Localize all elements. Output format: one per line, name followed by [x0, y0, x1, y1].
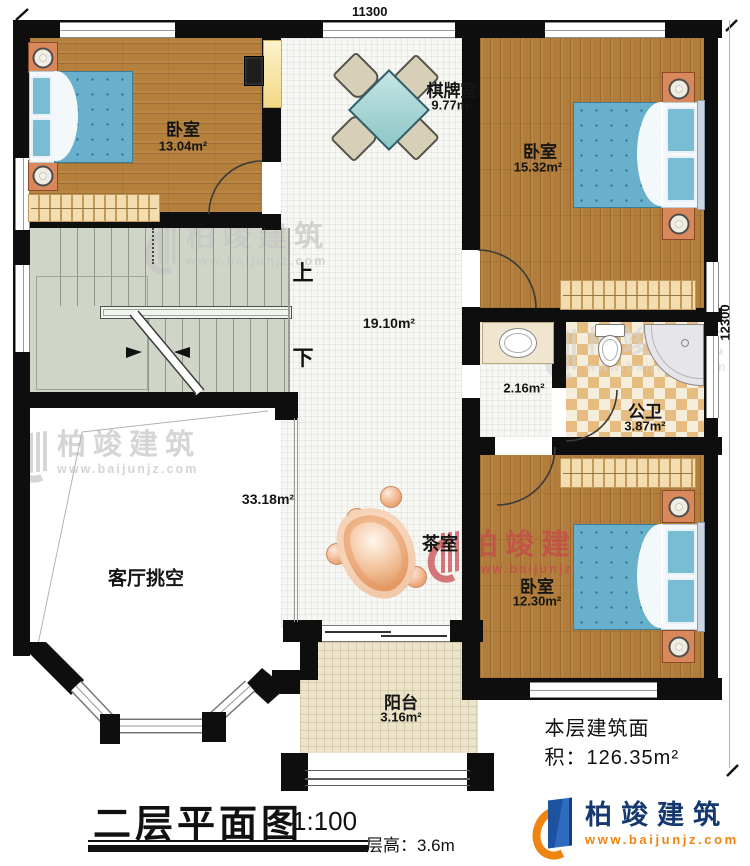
balcony-column-left: [281, 753, 308, 791]
stool: [380, 486, 402, 508]
wall-bathroom-west: [552, 322, 566, 388]
void-outline: [36, 411, 268, 654]
wall-balcony-left-top: [283, 620, 322, 642]
bay-post: [202, 712, 226, 742]
nightstand: [662, 490, 695, 523]
brand-name: 柏竣建筑: [585, 801, 739, 831]
dimension-label-top: 11300: [352, 4, 387, 19]
label-vestibule-area: 2.16m²: [503, 381, 544, 396]
stair-dotted-line: [152, 228, 158, 264]
floor-height-note: 层高：3.6m: [366, 831, 455, 856]
watermark-url: www.baijunjz.com: [57, 463, 201, 476]
nightstand: [28, 160, 58, 191]
sliding-door: [322, 625, 450, 642]
bay-window-frame: [76, 686, 250, 726]
label-living-name: 客厅挑空: [108, 564, 184, 591]
stair-handrail: [100, 306, 292, 319]
sliding-door-leaf: [381, 635, 448, 637]
brand-logo-icon: [533, 797, 577, 851]
door-opening-bedroom-br: [495, 437, 552, 455]
wardrobe: [560, 458, 696, 488]
label-hall-area: 19.10m²: [363, 315, 415, 331]
drawing-scale: 1:100: [292, 806, 357, 837]
window-top-bedroom-tl: [60, 22, 175, 38]
balcony-railing: [305, 770, 470, 786]
window-top-bedroom-tr: [545, 22, 665, 38]
bed-headboard: [697, 522, 705, 632]
stair-treads-lower: [148, 318, 288, 392]
floorplan-page: { "plan": { "dimension_top": "11300", "d…: [0, 0, 750, 863]
pillow: [666, 156, 696, 202]
label-bedroom-br-area: 12.30m²: [513, 594, 561, 609]
desk: [263, 40, 282, 108]
stair-open-edge: [288, 228, 290, 392]
bay-window-mullion: [76, 686, 250, 726]
wall-bedroomtr-south: [480, 308, 722, 322]
watermark-text: 柏竣建筑: [57, 431, 201, 460]
door-opening-bedroom-tl: [262, 162, 281, 214]
pillow: [666, 578, 696, 624]
washbasin: [499, 328, 537, 358]
label-tea-room-name: 茶室: [422, 530, 458, 556]
brand-website: www.baijunjz.com: [585, 833, 739, 847]
pillow: [31, 118, 52, 158]
wall-balcony-right-stub: [450, 620, 483, 642]
pillow: [31, 76, 52, 116]
wall-bedroombr-west: [462, 455, 480, 700]
title-underline-thin: [88, 840, 368, 842]
bay-window-glass: [76, 686, 250, 726]
wall-hall-east-upper: [462, 38, 480, 250]
floor-area-note: 本层建筑面积：126.35m²: [545, 712, 682, 770]
label-bathroom-area: 3.87m²: [624, 419, 665, 434]
label-living-area: 33.18m²: [242, 491, 294, 507]
wall-hall-east-mid: [462, 307, 480, 365]
wall-balcony-left-vert: [300, 642, 318, 680]
title-underline-thick: [88, 845, 368, 852]
watermark-living: 柏竣建筑 www.baijunjz.com: [16, 430, 201, 476]
door-opening-bathroom: [552, 388, 566, 437]
brand-logo: 柏竣建筑 www.baijunjz.com: [533, 797, 739, 851]
window-right-bathroom: [706, 336, 719, 418]
bay-wall-left: [28, 642, 84, 695]
nightstand: [28, 42, 58, 73]
window-left-stairs: [15, 265, 30, 352]
wardrobe: [560, 280, 696, 310]
label-bedroom-tr-area: 15.32m²: [514, 160, 562, 175]
pillow: [666, 529, 696, 575]
label-stairs-up: 上: [293, 257, 314, 287]
dimension-line-right: [729, 20, 730, 768]
window-bottom-bedroom-br: [530, 682, 657, 698]
label-bedroom-tl-area: 13.04m²: [159, 139, 207, 154]
nightstand: [662, 72, 695, 105]
balcony-column-right: [467, 753, 494, 791]
label-balcony-area: 3.16m²: [380, 710, 421, 725]
stair-landing-outline: [36, 276, 148, 390]
label-bedroom-tl-name: 卧室: [166, 116, 200, 141]
nightstand: [662, 630, 695, 663]
window-top-chess-room: [323, 22, 455, 38]
door-opening-bedroom-tr: [462, 250, 480, 307]
wall-bathroom-south-right: [552, 437, 722, 455]
wardrobe: [28, 194, 160, 222]
bed-headboard: [697, 100, 705, 210]
wall-living-bay-right: [272, 670, 300, 694]
tv-unit: [244, 56, 264, 86]
wall-bathroom-south-left: [462, 437, 495, 455]
sliding-door-leaf: [325, 631, 392, 633]
void-edge-line-b: [297, 418, 298, 622]
dimension-label-right: 12300: [718, 301, 733, 345]
void-edge-line-a: [294, 418, 295, 622]
pillow: [666, 107, 696, 153]
bay-post: [100, 714, 120, 744]
nightstand: [662, 207, 695, 240]
label-stairs-down: 下: [293, 342, 314, 372]
label-chess-room-area: 9.77m²: [431, 98, 472, 113]
wall-stairs-south: [13, 392, 298, 408]
